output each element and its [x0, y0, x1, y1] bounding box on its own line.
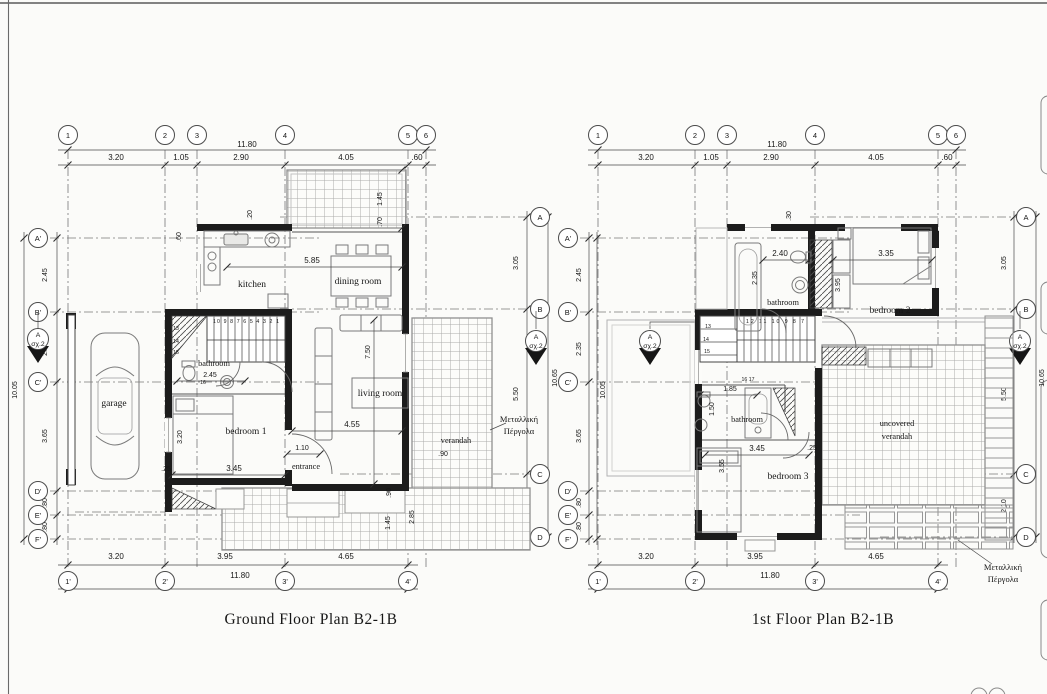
grid-bubble: 6: [954, 131, 958, 140]
grid-bubble: A: [1023, 213, 1028, 222]
grid-bubble: E': [565, 511, 572, 520]
right-dim-ticks: [1011, 214, 1040, 541]
room-label-bathroom1: bathroom: [767, 298, 799, 307]
grid-bubble: D': [565, 487, 572, 496]
dim-interior: 3.20: [177, 430, 184, 444]
drawing-sheet: 11.80 3.20 1.05 2.90 4.05 .60 1 2 3 4 5 …: [0, 0, 1047, 694]
dim-bottom: 4.65: [338, 552, 354, 561]
pergola-label-line2: Πέργολα: [988, 574, 1019, 584]
first-floor-plan: 11.80 3.20 1.05 2.90 4.05 .60 1 2 3 4 5 …: [559, 126, 1047, 629]
grid-bubble: A': [35, 234, 42, 243]
room-label-kitchen: kitchen: [238, 280, 266, 290]
dim-interior: 1.45: [377, 192, 384, 206]
grid-bubble: 2: [693, 131, 697, 140]
dim-top: 2.90: [763, 153, 779, 162]
stair-number: 15: [173, 350, 179, 356]
dim-left: 3.65: [576, 429, 583, 443]
stair-number: 15: [704, 349, 710, 355]
pergola-strip-bottom: [845, 505, 1013, 549]
dim-interior: 7.50: [365, 345, 372, 359]
dim-interior: 2.35: [752, 271, 759, 285]
grid-bubble: B': [565, 308, 572, 317]
dim-interior: 5.85: [304, 256, 320, 265]
dim-top: 1.05: [703, 153, 719, 162]
dim-right: 3.05: [513, 256, 520, 270]
dim-right: 3.05: [1001, 256, 1008, 270]
step: [745, 540, 775, 551]
bedroom2-door-arc: [824, 316, 856, 348]
first-plan-title: 1st Floor Plan B2-1B: [752, 611, 894, 628]
grid-bubble: B: [537, 305, 542, 314]
room-label-bathroom2: bathroom: [731, 415, 763, 424]
grid-bubble: 4': [405, 577, 411, 586]
dim-top: .60: [411, 153, 423, 162]
dim-left: 2.45: [576, 268, 583, 282]
dim-interior: .20: [247, 210, 254, 220]
dim-interior: .90: [386, 488, 393, 498]
pergola-annotation: Μεταλλική Πέργολα: [490, 414, 538, 436]
dim-total-bottom: 11.80: [230, 571, 250, 580]
grid-bubble: D: [537, 533, 543, 542]
balustrade-lines: [822, 318, 985, 322]
dim-top: 4.05: [338, 153, 354, 162]
room-label-verandah: verandah: [441, 436, 472, 445]
grid-bubble: 3: [725, 131, 729, 140]
grid-bubble: 1': [595, 577, 601, 586]
dim-interior: 4.55: [344, 420, 360, 429]
staircase: 12 11 10 9 8 7 13 14 15 16 17: [700, 316, 815, 383]
dim-total-left: 10.05: [600, 381, 607, 399]
section-marker-letter: A: [36, 332, 41, 339]
dim-total-top: 11.80: [237, 140, 257, 149]
right-grid-bubbles: A B C D: [531, 208, 550, 547]
dim-interior: 3.95: [835, 278, 842, 292]
dim-interior: .70: [377, 217, 384, 227]
grid-bubble: 4: [813, 131, 817, 140]
grid-bubble: 3': [282, 577, 288, 586]
dim-interior: 2.85: [409, 510, 416, 524]
grid-bubble: 4': [935, 577, 941, 586]
room-label-dining: dining room: [335, 277, 382, 287]
section-marker-ref: σχ.2: [31, 341, 45, 348]
dim-interior: .25: [161, 466, 171, 473]
left-dim-lines: [589, 232, 597, 545]
pergola-label-line2: Πέργολα: [504, 426, 535, 436]
section-marker-ref: σχ.2: [1013, 343, 1027, 350]
room-label-garage: garage: [101, 399, 126, 409]
bathroom2-door-arc: [761, 413, 788, 440]
room-label-entrance: entrance: [292, 462, 320, 471]
dim-interior: .90: [438, 451, 448, 458]
room-label-verandah-line2: verandah: [882, 432, 913, 441]
dim-interior: 2.45: [203, 372, 217, 379]
stair-number: 13: [173, 326, 179, 332]
dim-interior: .30: [786, 211, 793, 221]
dim-bottom: 4.65: [868, 552, 884, 561]
floor-plans-drawing: 11.80 3.20 1.05 2.90 4.05 .60 1 2 3 4 5 …: [0, 0, 1047, 694]
dim-total-bottom: 11.80: [760, 571, 780, 580]
kitchen-fixtures: [204, 231, 290, 308]
grid-bubble: A': [565, 234, 572, 243]
dim-left: .80: [576, 498, 583, 508]
right-dim-lines: [1014, 211, 1036, 543]
shower-hatched: [773, 388, 795, 436]
grid-bubble: 2': [162, 577, 168, 586]
dim-bottom: 3.95: [217, 552, 233, 561]
dim-left: 2.45: [42, 268, 49, 282]
room-label-bathroom: bathroom: [198, 359, 230, 368]
dim-total-left: 10.05: [12, 381, 19, 399]
dim-bottom: 3.20: [638, 552, 654, 561]
dim-interior: 1.50: [709, 402, 716, 416]
dim-total-right: 10.65: [1039, 369, 1046, 387]
dim-left: 2.35: [576, 342, 583, 356]
wardrobe-hatched: [810, 240, 832, 308]
dim-top: 2.90: [233, 153, 249, 162]
step: [216, 489, 244, 509]
porch-landing: [345, 489, 405, 513]
section-marker-letter: A: [534, 334, 539, 341]
dim-right: 5.50: [513, 387, 520, 401]
dim-top: 3.20: [638, 153, 654, 162]
grid-bubble: 2': [692, 577, 698, 586]
stair-number: 13: [705, 324, 711, 330]
grid-bubble: 5: [406, 131, 410, 140]
grid-bubble: D': [35, 487, 42, 496]
verandah-tiles-top: [287, 170, 406, 228]
dim-left: .80: [576, 522, 583, 532]
dim-interior: 1.10: [295, 445, 309, 452]
grid-bubble: 1: [66, 131, 70, 140]
bathroom2-fixtures: [695, 388, 771, 438]
dim-bottom: 3.20: [108, 552, 124, 561]
dim-interior: 3.55: [719, 459, 726, 473]
bedroom3-door-arc: [783, 432, 809, 458]
room-label-bedroom2: bedroom 2: [870, 306, 911, 316]
room-label-bedroom1: bedroom 1: [226, 427, 267, 437]
garage-wall: [68, 315, 75, 485]
section-marker-letter: A: [1018, 334, 1023, 341]
section-marker-ref: σχ.2: [643, 343, 657, 350]
ground-floor-plan: 11.80 3.20 1.05 2.90 4.05 .60 1 2 3 4 5 …: [12, 126, 559, 629]
dim-interior: 3.35: [878, 249, 894, 258]
dim-total-right: 10.65: [552, 369, 559, 387]
ground-plan-title: Ground Floor Plan B2-1B: [225, 611, 398, 628]
dim-interior: 1.45: [385, 516, 392, 530]
wardrobe-boxes: [833, 240, 850, 308]
section-marker-left: A σχ.2: [639, 322, 695, 365]
dim-interior: 3.45: [226, 464, 242, 473]
grid-bubble: C': [565, 378, 572, 387]
pergola-label-line1: Μεταλλική: [500, 414, 538, 424]
grid-bubble: C: [537, 470, 543, 479]
left-grid-bubbles: A' B' C' D' E' F': [559, 229, 578, 549]
dim-total-top: 11.80: [767, 140, 787, 149]
living-furniture: [315, 315, 408, 440]
room-label-verandah-line1: uncovered: [880, 419, 915, 428]
grid-bubble: 2: [163, 131, 167, 140]
section-marker-ref: σχ.2: [529, 343, 543, 350]
grid-bubble: 3': [812, 577, 818, 586]
grid-bubble: F': [35, 535, 42, 544]
section-marker-letter: A: [648, 334, 653, 341]
room-label-living: living room: [358, 389, 403, 399]
dim-bottom: 3.95: [747, 552, 763, 561]
right-grid-bubbles: A B C D: [1017, 208, 1036, 547]
grid-bubble: 1': [65, 577, 71, 586]
dim-top: 3.20: [108, 153, 124, 162]
stair-numbers: 10 9 8 7 6 5 4 3 2 1: [213, 319, 279, 325]
room-label-bedroom3: bedroom 3: [768, 472, 809, 482]
grid-bubble: D: [1023, 533, 1029, 542]
dim-interior: .25: [807, 445, 817, 452]
void-outline: [696, 228, 727, 309]
grid-bubble: 6: [424, 131, 428, 140]
grid-bubble: A: [537, 213, 542, 222]
grid-bubble: E': [35, 511, 42, 520]
grid-bubble: C: [1023, 470, 1029, 479]
dim-interior: 2.40: [772, 249, 788, 258]
grid-bubble: F': [565, 535, 572, 544]
grid-bubble: B: [1023, 305, 1028, 314]
dim-interior: 1.85: [723, 386, 737, 393]
dim-left: 3.65: [42, 429, 49, 443]
grid-bubble: C': [35, 378, 42, 387]
dim-top: 4.05: [868, 153, 884, 162]
grid-bubble: 1: [596, 131, 600, 140]
section-marker-right: A σχ.2: [525, 311, 547, 365]
dining-furniture: [331, 245, 391, 307]
stair-number: 14: [173, 339, 179, 345]
grid-bubble: 5: [936, 131, 940, 140]
grid-bubble: 4: [283, 131, 287, 140]
pergola-label-line1: Μεταλλική: [984, 562, 1022, 572]
dim-top: 1.05: [173, 153, 189, 162]
dim-interior: .60: [176, 232, 183, 242]
dim-interior: 3.45: [749, 444, 765, 453]
stair-number: 16 17: [742, 377, 755, 383]
grid-bubble: 3: [195, 131, 199, 140]
stair-number: 14: [703, 337, 709, 343]
wardrobe-hatched-2: [822, 347, 866, 365]
dim-top: .60: [941, 153, 953, 162]
